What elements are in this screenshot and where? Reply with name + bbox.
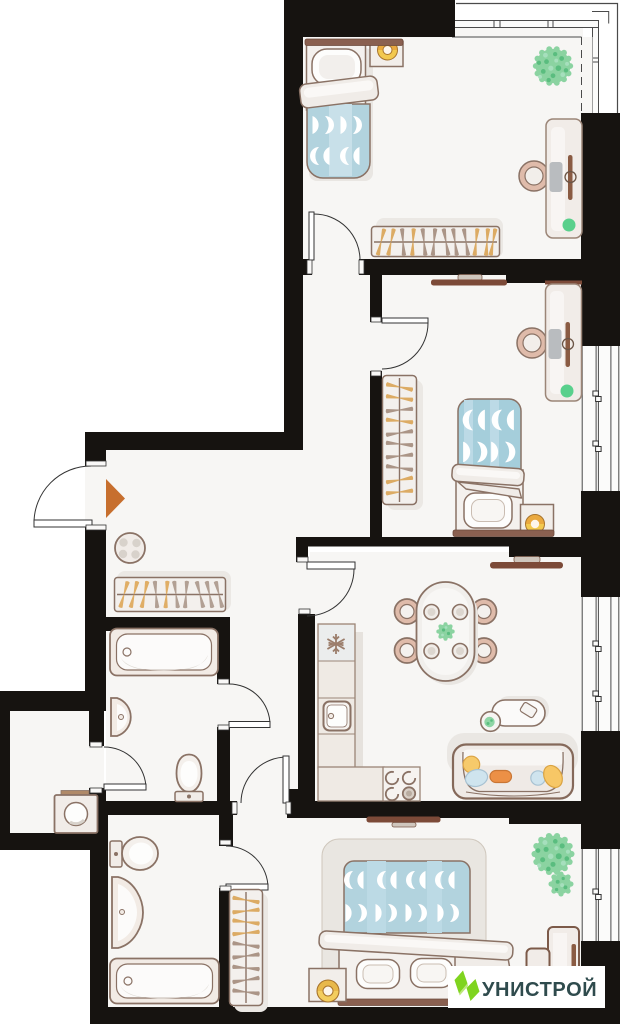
svg-text:УНИСТРОЙ: УНИСТРОЙ [482,977,597,1001]
